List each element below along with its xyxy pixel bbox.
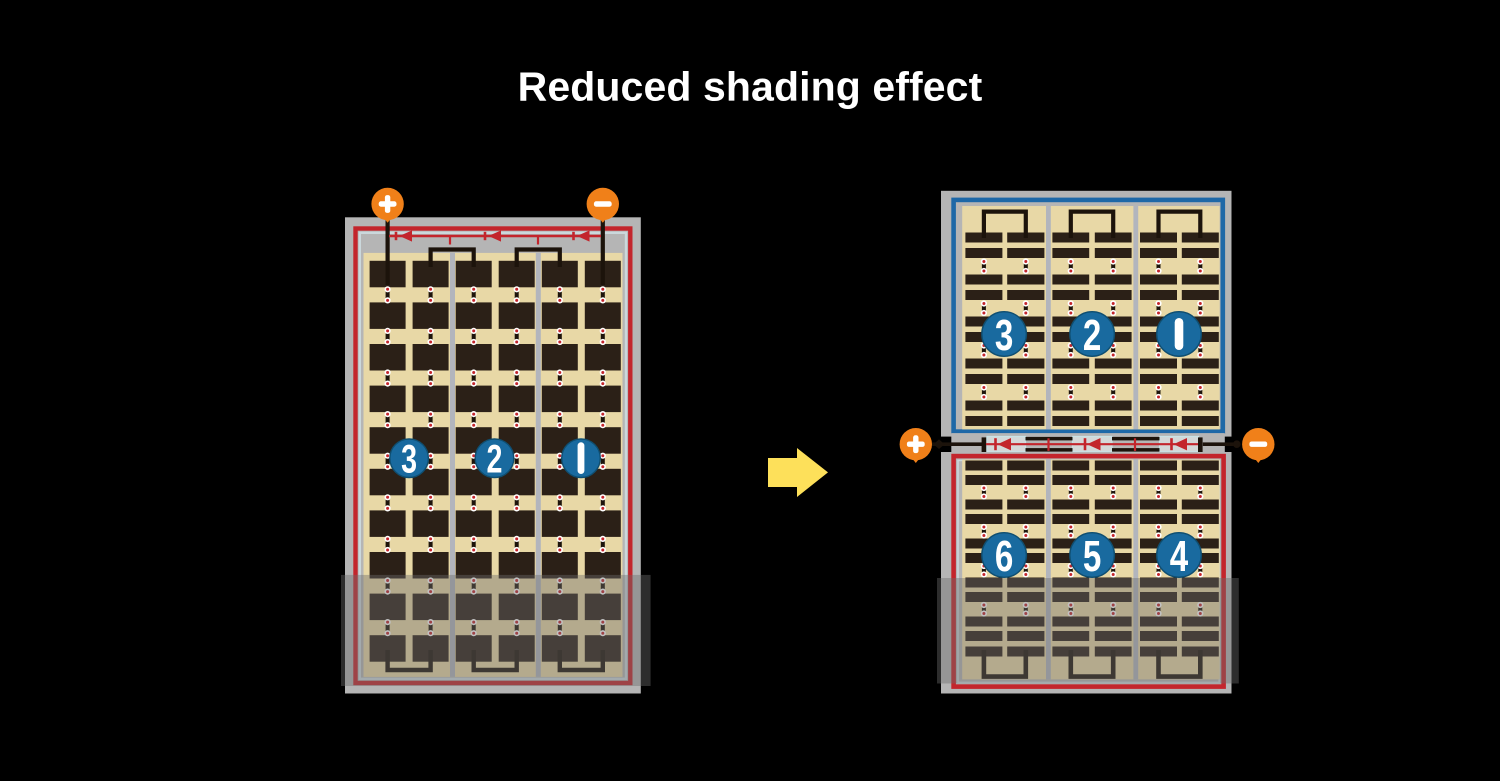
svg-text:5: 5 [1083, 533, 1101, 581]
svg-text:6: 6 [995, 533, 1013, 581]
svg-text:2: 2 [1083, 312, 1101, 360]
svg-text:Reduced shading effect: Reduced shading effect [518, 64, 983, 110]
svg-text:2: 2 [487, 438, 503, 482]
svg-text:3: 3 [995, 312, 1013, 360]
svg-text:4: 4 [1170, 533, 1189, 581]
svg-text:3: 3 [401, 438, 417, 482]
